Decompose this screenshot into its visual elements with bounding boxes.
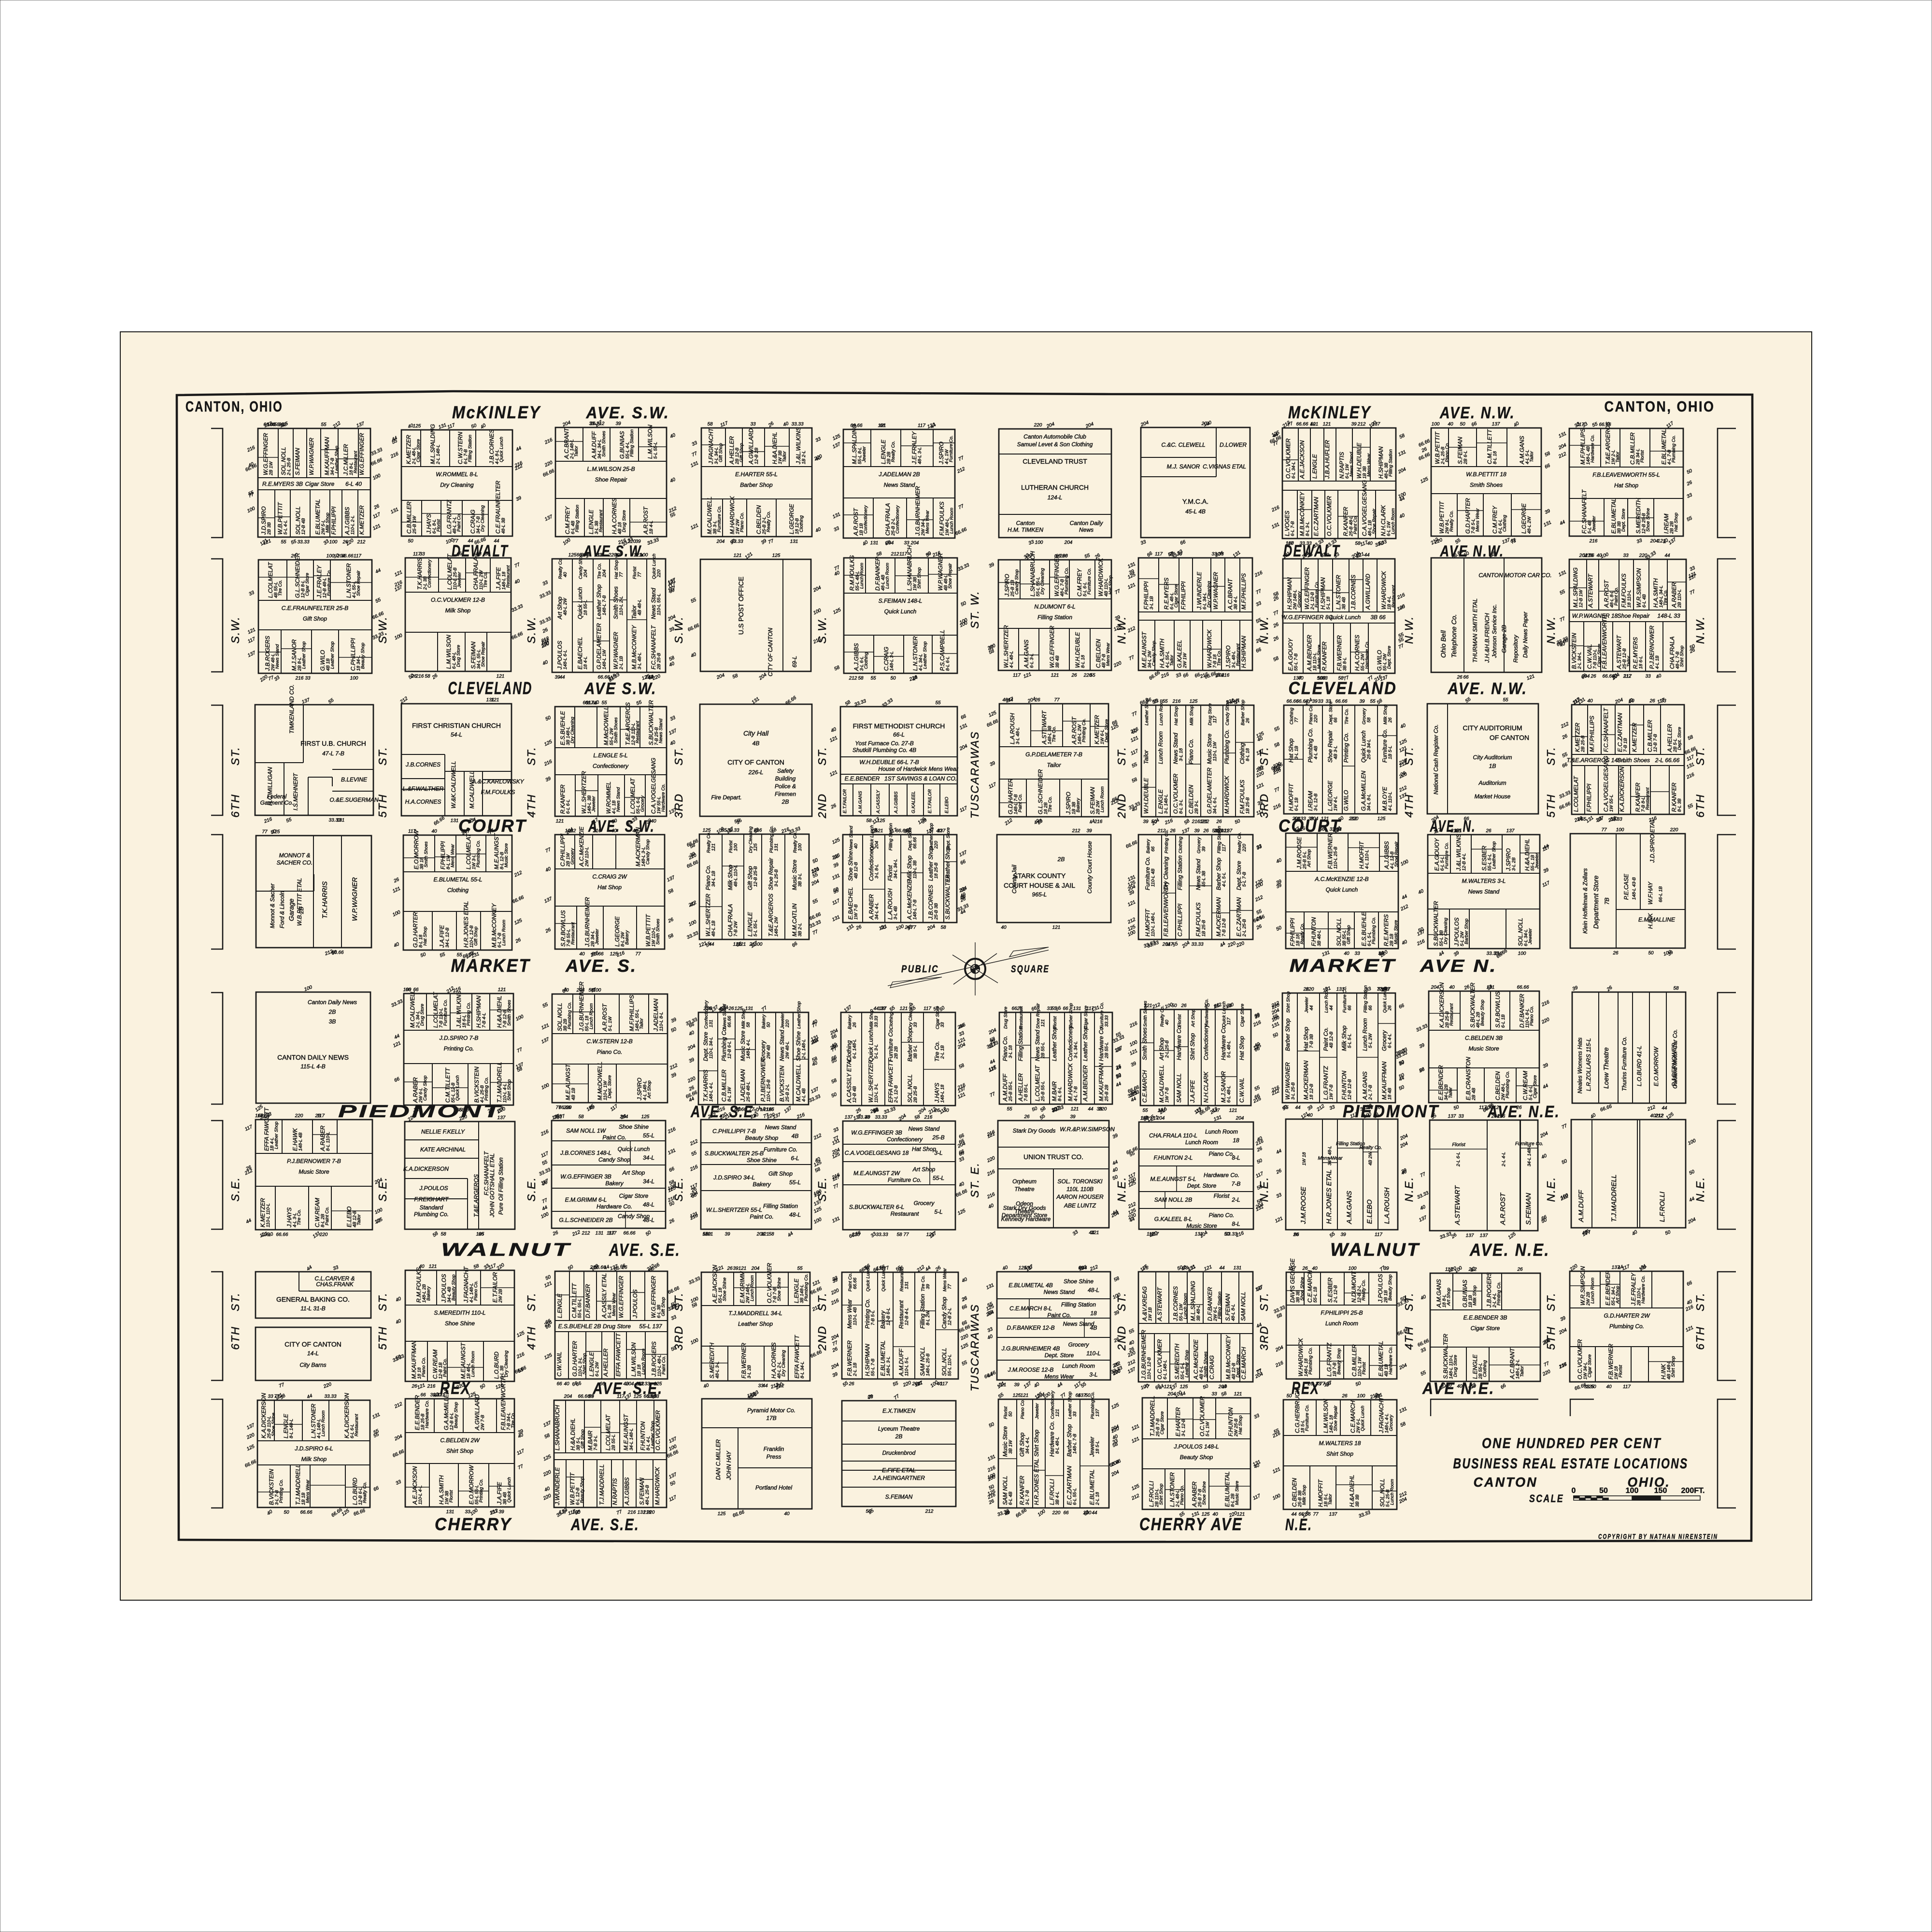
svg-text:100: 100 bbox=[797, 843, 803, 851]
svg-text:JOHN HAY: JOHN HAY bbox=[725, 1450, 732, 1480]
svg-text:Hardware Co.: Hardware Co. bbox=[1641, 1275, 1646, 1304]
svg-text:54-L: 54-L bbox=[451, 731, 462, 738]
svg-text:33.33: 33.33 bbox=[791, 422, 803, 427]
svg-text:117: 117 bbox=[1286, 541, 1293, 546]
svg-text:C.BELDEN: C.BELDEN bbox=[755, 505, 762, 534]
svg-text:A.R.ROST: A.R.ROST bbox=[1603, 580, 1610, 608]
svg-text:L.&F.WALTHER: L.&F.WALTHER bbox=[403, 785, 444, 792]
svg-text:Music Store: Music Store bbox=[1206, 733, 1213, 764]
svg-text:G.KALEEL: G.KALEEL bbox=[1176, 640, 1183, 668]
svg-text:Plumbing Co.: Plumbing Co. bbox=[1307, 728, 1314, 763]
svg-text:C.E.MARCH 8-L: C.E.MARCH 8-L bbox=[1009, 1305, 1052, 1312]
svg-text:L.GEORGE: L.GEORGE bbox=[1327, 780, 1334, 811]
svg-text:121: 121 bbox=[1229, 1108, 1237, 1113]
svg-text:Printing Co.: Printing Co. bbox=[279, 1479, 284, 1503]
svg-text:100: 100 bbox=[1616, 827, 1624, 833]
svg-text:Restaurant: Restaurant bbox=[1391, 585, 1396, 608]
svg-text:1W 55-L: 1W 55-L bbox=[1609, 795, 1614, 812]
svg-text:58: 58 bbox=[425, 674, 430, 679]
svg-text:66.66: 66.66 bbox=[912, 837, 918, 849]
svg-text:110-L 2-L: 110-L 2-L bbox=[619, 596, 624, 615]
svg-text:I.REAM: I.REAM bbox=[1307, 791, 1314, 811]
svg-text:18 4B: 18 4B bbox=[1387, 1088, 1392, 1100]
svg-text:Paint Co.: Paint Co. bbox=[442, 1358, 448, 1377]
svg-text:H.A.CORNES: H.A.CORNES bbox=[611, 498, 618, 534]
svg-text:Hardware Co.: Hardware Co. bbox=[425, 1400, 430, 1428]
svg-text:F.B.LEAVENWORTH 55-L: F.B.LEAVENWORTH 55-L bbox=[1592, 471, 1660, 478]
svg-text:J.M.ROOSE: J.M.ROOSE bbox=[1299, 1186, 1307, 1224]
svg-text:Hat Shop: Hat Shop bbox=[1614, 482, 1638, 489]
svg-text:39: 39 bbox=[1004, 1510, 1010, 1516]
svg-text:55: 55 bbox=[1090, 673, 1095, 678]
svg-text:125: 125 bbox=[735, 1006, 743, 1011]
svg-text:M.E.AUNGST 2W: M.E.AUNGST 2W bbox=[853, 1170, 901, 1177]
svg-text:55: 55 bbox=[601, 700, 607, 706]
svg-text:Federal: Federal bbox=[267, 793, 287, 800]
svg-text:6-L 148-L: 6-L 148-L bbox=[1163, 1360, 1168, 1380]
svg-text:KATE ARCHINAL: KATE ARCHINAL bbox=[420, 1146, 466, 1153]
svg-text:A.M.GANS: A.M.GANS bbox=[1345, 1191, 1353, 1224]
svg-text:Cigar Store: Cigar Store bbox=[1471, 1325, 1500, 1332]
svg-text:L.SHANABRUCH: L.SHANABRUCH bbox=[906, 545, 913, 591]
svg-text:M.HARDWICK: M.HARDWICK bbox=[1223, 775, 1230, 814]
svg-text:C.E.MARCH: C.E.MARCH bbox=[1350, 1400, 1356, 1433]
svg-text:Portland Hotel: Portland Hotel bbox=[755, 1484, 792, 1491]
svg-text:Stark Dry Goods: Stark Dry Goods bbox=[1013, 1127, 1056, 1134]
svg-text:F.HUNTON: F.HUNTON bbox=[1227, 1407, 1234, 1436]
svg-text:125: 125 bbox=[1180, 1384, 1188, 1390]
svg-text:Tailor: Tailor bbox=[1615, 451, 1620, 463]
svg-text:M.M.CATLIN: M.M.CATLIN bbox=[791, 903, 798, 937]
svg-text:W.P.WAGNER: W.P.WAGNER bbox=[1284, 1062, 1291, 1100]
svg-text:25-B 55-L: 25-B 55-L bbox=[1008, 1081, 1013, 1102]
svg-text:66: 66 bbox=[1463, 675, 1469, 680]
svg-text:39: 39 bbox=[581, 553, 586, 558]
svg-text:E.M.GRIMM: E.M.GRIMM bbox=[739, 1271, 746, 1303]
svg-text:5-L 4-L: 5-L 4-L bbox=[283, 520, 288, 535]
svg-text:100: 100 bbox=[329, 540, 338, 545]
svg-text:M.KAUFFMAN: M.KAUFFMAN bbox=[1098, 1063, 1105, 1101]
svg-text:Shoe Shine: Shoe Shine bbox=[445, 1320, 475, 1327]
svg-text:SAM NOLL 1W: SAM NOLL 1W bbox=[566, 1127, 606, 1134]
svg-text:Mens Wear: Mens Wear bbox=[1318, 1156, 1343, 1161]
svg-text:News Stand: News Stand bbox=[765, 1124, 796, 1131]
svg-text:33.33: 33.33 bbox=[1191, 942, 1203, 947]
svg-text:Dept. Store: Dept. Store bbox=[702, 1032, 709, 1061]
svg-text:WALNUT: WALNUT bbox=[1330, 1240, 1420, 1260]
svg-text:M.KAUFFMAN: M.KAUFFMAN bbox=[324, 437, 330, 475]
svg-text:3-L 2B: 3-L 2B bbox=[747, 1365, 752, 1378]
svg-text:Lunch Room: Lunch Room bbox=[859, 563, 865, 589]
svg-text:W.L.SHERTZER: W.L.SHERTZER bbox=[1003, 625, 1009, 668]
svg-text:Barber Shop: Barber Shop bbox=[1284, 1018, 1291, 1051]
svg-text:Monnot & Sacher: Monnot & Sacher bbox=[269, 883, 276, 928]
svg-text:44: 44 bbox=[1291, 1512, 1297, 1517]
svg-text:Leather Shop: Leather Shop bbox=[923, 641, 928, 669]
svg-text:33: 33 bbox=[1182, 1265, 1188, 1271]
svg-text:J.B.A.HUFLER: J.B.A.HUFLER bbox=[1324, 440, 1331, 479]
svg-text:Piano Co.: Piano Co. bbox=[1209, 1151, 1235, 1157]
svg-text:131: 131 bbox=[596, 1231, 604, 1236]
svg-text:131: 131 bbox=[709, 1020, 714, 1027]
svg-text:A.R.ROST: A.R.ROST bbox=[852, 508, 859, 536]
svg-text:Shoe Repair: Shoe Repair bbox=[356, 570, 361, 596]
svg-text:Music Store: Music Store bbox=[739, 1030, 746, 1061]
svg-text:110-L 4B: 110-L 4B bbox=[1151, 868, 1156, 887]
svg-text:M.E.AUNGST: M.E.AUNGST bbox=[1141, 631, 1148, 668]
svg-text:Press: Press bbox=[767, 1453, 781, 1460]
svg-text:148-L 1W: 148-L 1W bbox=[602, 649, 607, 669]
svg-text:Gift Shop: Gift Shop bbox=[303, 615, 327, 622]
svg-text:City Barns: City Barns bbox=[299, 1362, 326, 1368]
svg-text:A.C.McKENZIE 12-B: A.C.McKENZIE 12-B bbox=[1314, 876, 1368, 882]
svg-text:33: 33 bbox=[1325, 699, 1331, 704]
svg-text:H.&A.DIEHL: H.&A.DIEHL bbox=[1524, 838, 1531, 871]
svg-text:26: 26 bbox=[1590, 674, 1596, 679]
svg-text:N.E.: N.E. bbox=[1403, 1177, 1415, 1202]
svg-text:2-L 12-B: 2-L 12-B bbox=[1333, 1285, 1338, 1303]
svg-text:33: 33 bbox=[750, 422, 756, 427]
svg-text:E.BLUMETAL: E.BLUMETAL bbox=[1610, 498, 1617, 534]
svg-text:12-B 4B: 12-B 4B bbox=[852, 1086, 857, 1103]
svg-text:66.66: 66.66 bbox=[623, 1231, 635, 1236]
svg-text:Gift Shop: Gift Shop bbox=[473, 926, 479, 946]
svg-text:4B: 4B bbox=[1090, 1324, 1097, 1331]
svg-text:137: 137 bbox=[1492, 422, 1500, 427]
svg-text:121: 121 bbox=[1200, 819, 1208, 824]
svg-text:Music Store: Music Store bbox=[791, 859, 798, 890]
svg-text:O.C.VOLKMER: O.C.VOLKMER bbox=[1577, 1339, 1583, 1379]
svg-text:Quick Lunch: Quick Lunch bbox=[1360, 1406, 1365, 1431]
svg-text:C.PHILLIPPI: C.PHILLIPPI bbox=[350, 638, 356, 671]
svg-text:77: 77 bbox=[469, 818, 475, 824]
svg-text:4-L 5-L: 4-L 5-L bbox=[1222, 872, 1227, 887]
svg-text:2B: 2B bbox=[781, 798, 789, 805]
svg-text:5-L: 5-L bbox=[934, 1208, 942, 1215]
svg-text:G.P.DELAMETER: G.P.DELAMETER bbox=[1206, 767, 1213, 814]
svg-text:H.A.CORNES: H.A.CORNES bbox=[1354, 635, 1361, 671]
svg-text:40: 40 bbox=[651, 819, 656, 824]
svg-text:48-L 25-B: 48-L 25-B bbox=[645, 1485, 650, 1505]
svg-text:148-L 2W: 148-L 2W bbox=[774, 916, 779, 937]
svg-text:121: 121 bbox=[1454, 828, 1462, 834]
svg-text:S.MEREDITH 110-L: S.MEREDITH 110-L bbox=[434, 1309, 485, 1316]
svg-text:Telephone Co.: Telephone Co. bbox=[1450, 614, 1458, 658]
svg-text:A.STEWART: A.STEWART bbox=[1156, 1287, 1163, 1321]
svg-text:55: 55 bbox=[1051, 1006, 1057, 1011]
svg-text:131: 131 bbox=[638, 1510, 646, 1515]
svg-text:S.BUCKWALTER 6-L: S.BUCKWALTER 6-L bbox=[849, 1204, 904, 1210]
svg-text:6-L 34-L: 6-L 34-L bbox=[1291, 462, 1296, 479]
svg-text:C.VIGNAS ETAL: C.VIGNAS ETAL bbox=[1203, 463, 1246, 470]
svg-text:AVE. S.E.: AVE. S.E. bbox=[609, 1240, 681, 1260]
svg-text:Lunch Room: Lunch Room bbox=[750, 1275, 755, 1301]
svg-text:26: 26 bbox=[621, 1265, 627, 1270]
svg-text:2W 7-B: 2W 7-B bbox=[480, 1415, 485, 1431]
svg-text:National Cash Register Co.: National Cash Register Co. bbox=[1433, 724, 1439, 795]
svg-text:77: 77 bbox=[1313, 1512, 1319, 1517]
svg-text:50: 50 bbox=[408, 539, 413, 544]
svg-text:39: 39 bbox=[724, 1232, 730, 1237]
svg-text:C.M.TILLETT: C.M.TILLETT bbox=[571, 1282, 578, 1318]
svg-text:AVE. N.W.: AVE. N.W. bbox=[1439, 404, 1515, 422]
svg-text:N.W.: N.W. bbox=[1403, 616, 1415, 644]
svg-text:A.RABER: A.RABER bbox=[412, 1077, 419, 1103]
svg-text:26: 26 bbox=[1071, 673, 1077, 678]
svg-text:S.FEIMAN 148-L: S.FEIMAN 148-L bbox=[879, 597, 923, 604]
svg-text:T.&E.ARGEROS: T.&E.ARGEROS bbox=[625, 702, 631, 745]
svg-text:J.B.CORNES: J.B.CORNES bbox=[488, 429, 495, 465]
svg-text:2B 25-B: 2B 25-B bbox=[1580, 735, 1586, 753]
svg-text:ST.: ST. bbox=[229, 746, 241, 766]
svg-text:Hat Shop: Hat Shop bbox=[423, 926, 428, 946]
svg-text:Leather Shop: Leather Shop bbox=[944, 846, 951, 881]
svg-text:5-L 55-L: 5-L 55-L bbox=[753, 920, 758, 937]
svg-text:Clothing: Clothing bbox=[864, 652, 869, 669]
svg-text:204: 204 bbox=[564, 1394, 572, 1399]
svg-text:117: 117 bbox=[1212, 715, 1218, 723]
svg-text:2B 3B: 2B 3B bbox=[267, 522, 272, 535]
svg-text:Daily News Paper: Daily News Paper bbox=[1522, 611, 1529, 658]
svg-text:R.E.MYERS: R.E.MYERS bbox=[1163, 578, 1170, 610]
svg-text:44: 44 bbox=[1088, 1107, 1094, 1112]
svg-text:L.ENGLE: L.ENGLE bbox=[556, 1293, 563, 1318]
svg-text:216: 216 bbox=[1172, 699, 1181, 704]
svg-text:Dry Cleaning: Dry Cleaning bbox=[570, 716, 575, 743]
svg-text:Ford & Lincoln: Ford & Lincoln bbox=[279, 891, 285, 928]
svg-text:58: 58 bbox=[459, 1108, 465, 1113]
svg-text:CANTON MOTOR CAR CO.: CANTON MOTOR CAR CO. bbox=[1478, 572, 1552, 579]
svg-text:E.LEBO: E.LEBO bbox=[346, 1207, 353, 1227]
svg-text:3RD: 3RD bbox=[1258, 1325, 1270, 1350]
svg-text:C.PHILLIPPI: C.PHILLIPPI bbox=[1177, 903, 1183, 937]
svg-text:M.CALDWELL: M.CALDWELL bbox=[795, 1064, 802, 1102]
svg-text:CHERRY: CHERRY bbox=[435, 1514, 512, 1534]
svg-text:A.C.BRANT: A.C.BRANT bbox=[1227, 578, 1234, 610]
svg-text:Tailor: Tailor bbox=[1529, 451, 1534, 462]
svg-text:6-L 2W: 6-L 2W bbox=[595, 1362, 600, 1377]
svg-text:C.M.TILLETT: C.M.TILLETT bbox=[444, 1067, 451, 1103]
svg-text:J.SPIRO: J.SPIRO bbox=[1505, 848, 1512, 871]
svg-text:18: 18 bbox=[1233, 1137, 1239, 1144]
svg-text:Lunch Room: Lunch Room bbox=[1391, 508, 1396, 534]
svg-text:39: 39 bbox=[733, 1266, 739, 1271]
svg-text:5-L 55-L: 5-L 55-L bbox=[653, 442, 658, 459]
svg-text:148-L 25-B: 148-L 25-B bbox=[925, 1353, 931, 1376]
svg-text:Johnson Service Inc.: Johnson Service Inc. bbox=[1491, 604, 1498, 658]
svg-text:J.&L.WILKINS: J.&L.WILKINS bbox=[455, 991, 462, 1028]
svg-text:Gift Shop: Gift Shop bbox=[718, 443, 724, 462]
svg-text:26: 26 bbox=[904, 925, 910, 930]
svg-text:O.C.VOLKMER 12-B: O.C.VOLKMER 12-B bbox=[431, 597, 485, 603]
svg-text:H.R.JONES ETAL: H.R.JONES ETAL bbox=[1325, 1169, 1333, 1224]
svg-text:Beauty Shop: Beauty Shop bbox=[1480, 1000, 1485, 1026]
svg-text:C.BELDEN: C.BELDEN bbox=[1188, 785, 1194, 814]
svg-text:Gift Shop: Gift Shop bbox=[580, 1429, 585, 1449]
svg-text:48-L 3B: 48-L 3B bbox=[501, 517, 506, 534]
svg-text:E.BLUMETAL 4B: E.BLUMETAL 4B bbox=[1009, 1282, 1053, 1289]
svg-text:M.L.SPALDING: M.L.SPALDING bbox=[429, 424, 436, 464]
svg-text:Quick Lunch: Quick Lunch bbox=[1329, 614, 1361, 621]
svg-text:M.WALTERS 18: M.WALTERS 18 bbox=[1319, 1440, 1361, 1447]
svg-text:Gift Shop: Gift Shop bbox=[1019, 1433, 1025, 1457]
svg-text:A.E.JACKSON: A.E.JACKSON bbox=[1299, 440, 1306, 479]
svg-text:A.J.GIBBS: A.J.GIBBS bbox=[853, 643, 860, 671]
svg-text:M.E.AUNGST 5-L: M.E.AUNGST 5-L bbox=[1150, 1176, 1196, 1182]
svg-text:H.M. TIMKEN: H.M. TIMKEN bbox=[1008, 526, 1043, 533]
svg-text:Mens Wear: Mens Wear bbox=[846, 1299, 853, 1329]
svg-text:L.F.ROLLI: L.F.ROLLI bbox=[1658, 1192, 1666, 1222]
svg-text:220: 220 bbox=[934, 840, 939, 849]
svg-text:Samuel Levet & Son Clothing: Samuel Levet & Son Clothing bbox=[1017, 441, 1093, 448]
svg-text:CHA.FRALA: CHA.FRALA bbox=[472, 557, 479, 590]
svg-text:H.SHIPMAN: H.SHIPMAN bbox=[1378, 446, 1384, 479]
svg-text:58: 58 bbox=[440, 1232, 446, 1237]
svg-text:J.POULOS: J.POULOS bbox=[1377, 1274, 1384, 1303]
svg-text:Piano Co.: Piano Co. bbox=[1209, 1212, 1235, 1219]
svg-text:S.E.: S.E. bbox=[525, 1177, 538, 1201]
svg-text:H.MOFFIT: H.MOFFIT bbox=[1317, 1479, 1324, 1507]
svg-text:S.FEIMAN: S.FEIMAN bbox=[1457, 437, 1463, 464]
svg-text:117: 117 bbox=[1226, 1017, 1232, 1025]
svg-text:SOL.NOLL: SOL.NOLL bbox=[556, 1003, 563, 1031]
svg-text:Printing Co.: Printing Co. bbox=[1343, 732, 1350, 763]
svg-text:2B 25-B: 2B 25-B bbox=[656, 653, 662, 670]
svg-text:N.E.: N.E. bbox=[1545, 1177, 1557, 1202]
svg-text:8-L 6-L: 8-L 6-L bbox=[945, 656, 951, 671]
svg-text:Shirt Shop: Shirt Shop bbox=[1189, 1033, 1196, 1060]
svg-text:125: 125 bbox=[413, 424, 421, 429]
svg-text:Furniture Co.: Furniture Co. bbox=[887, 1028, 894, 1062]
svg-text:W.G.EFFINGER: W.G.EFFINGER bbox=[618, 1276, 625, 1318]
svg-text:3B 48-L: 3B 48-L bbox=[1196, 1305, 1201, 1321]
svg-text:L.O.BURD: L.O.BURD bbox=[352, 1477, 358, 1505]
svg-text:131: 131 bbox=[446, 1509, 455, 1515]
svg-text:110-L 8-L: 110-L 8-L bbox=[659, 1012, 664, 1031]
svg-text:Shoe Shine: Shoe Shine bbox=[1300, 1277, 1305, 1301]
svg-text:Hat Shop: Hat Shop bbox=[1108, 575, 1113, 595]
svg-text:121: 121 bbox=[734, 553, 742, 558]
svg-text:39: 39 bbox=[1086, 828, 1092, 834]
svg-text:L.G.FRANTZ: L.G.FRANTZ bbox=[446, 499, 453, 534]
svg-text:E.M.MALLINE: E.M.MALLINE bbox=[1638, 916, 1676, 923]
svg-text:Florist: Florist bbox=[1214, 1193, 1230, 1199]
svg-text:W.L.SHERTZER: W.L.SHERTZER bbox=[581, 771, 587, 814]
svg-text:6TH: 6TH bbox=[229, 1326, 241, 1350]
svg-text:216: 216 bbox=[627, 1510, 636, 1515]
svg-text:W.P.WAGNER 18: W.P.WAGNER 18 bbox=[1572, 612, 1618, 619]
svg-text:Shirt Shop: Shirt Shop bbox=[507, 1080, 512, 1101]
svg-text:33.33: 33.33 bbox=[876, 1232, 888, 1237]
svg-text:66: 66 bbox=[1463, 816, 1469, 822]
svg-text:Jeweler: Jeweler bbox=[862, 446, 867, 463]
svg-text:77: 77 bbox=[1294, 717, 1299, 723]
svg-text:Milk Shop: Milk Shop bbox=[1302, 1485, 1307, 1505]
svg-text:A.R.ROST: A.R.ROST bbox=[1071, 716, 1078, 745]
svg-text:121: 121 bbox=[900, 1006, 908, 1011]
svg-text:Realty Co.: Realty Co. bbox=[891, 441, 896, 462]
svg-text:66: 66 bbox=[484, 552, 490, 557]
svg-text:R.E.MYERS: R.E.MYERS bbox=[1383, 914, 1390, 946]
svg-text:2-L 6-L: 2-L 6-L bbox=[1456, 1152, 1461, 1167]
svg-text:ST. W.: ST. W. bbox=[968, 590, 981, 628]
svg-text:T.J.MADDRELL: T.J.MADDRELL bbox=[598, 1464, 605, 1505]
svg-text:137: 137 bbox=[1480, 1233, 1488, 1238]
svg-text:Cigar Store: Cigar Store bbox=[1174, 584, 1179, 608]
svg-text:8-L 18: 8-L 18 bbox=[1080, 655, 1086, 668]
svg-text:Florist: Florist bbox=[1452, 1142, 1465, 1148]
svg-text:131: 131 bbox=[1336, 987, 1345, 992]
svg-text:Pyramid Motor Co.: Pyramid Motor Co. bbox=[747, 1407, 796, 1414]
svg-text:1B 25-B: 1B 25-B bbox=[1245, 797, 1250, 814]
svg-text:Quick Lunch: Quick Lunch bbox=[1360, 730, 1367, 763]
svg-text:Shoe Repair: Shoe Repair bbox=[1333, 1405, 1338, 1431]
svg-text:L.A.ROUSH: L.A.ROUSH bbox=[1383, 1187, 1391, 1224]
svg-text:W.P.WAGNER: W.P.WAGNER bbox=[351, 877, 358, 921]
svg-text:Lunch Room: Lunch Room bbox=[1362, 1018, 1368, 1051]
svg-text:66.66: 66.66 bbox=[1335, 699, 1347, 704]
svg-text:K.A.DICKERSON: K.A.DICKERSON bbox=[403, 1165, 449, 1172]
svg-text:Building: Building bbox=[775, 775, 796, 782]
svg-text:Shirt Shop: Shirt Shop bbox=[1671, 1356, 1676, 1378]
svg-text:26: 26 bbox=[728, 1006, 734, 1011]
svg-text:W.H.DEUBLE 66-L 7-B: W.H.DEUBLE 66-L 7-B bbox=[859, 759, 919, 766]
svg-text:L.ENGLE: L.ENGLE bbox=[747, 911, 753, 937]
svg-text:58: 58 bbox=[707, 422, 713, 427]
svg-text:110L 110B: 110L 110B bbox=[1066, 1186, 1094, 1193]
svg-text:B.LEVINE: B.LEVINE bbox=[341, 776, 368, 783]
svg-text:E.C.ZARTMAN: E.C.ZARTMAN bbox=[1313, 497, 1320, 536]
svg-text:4-L 4B: 4-L 4B bbox=[801, 1088, 807, 1102]
svg-text:40: 40 bbox=[936, 828, 942, 834]
svg-text:3-L: 3-L bbox=[1089, 1371, 1097, 1378]
svg-text:Piano Co.: Piano Co. bbox=[597, 1049, 623, 1055]
svg-text:220: 220 bbox=[295, 1113, 303, 1119]
svg-text:Paint Co.: Paint Co. bbox=[1322, 1027, 1329, 1051]
svg-text:S.R.BOWLUS: S.R.BOWLUS bbox=[560, 910, 567, 947]
svg-text:55: 55 bbox=[797, 1266, 803, 1271]
svg-text:A.M.GANS: A.M.GANS bbox=[1519, 436, 1525, 465]
svg-text:Fire Depart.: Fire Depart. bbox=[711, 794, 741, 801]
svg-text:M.McDOWELL: M.McDOWELL bbox=[603, 707, 610, 745]
svg-text:Canton Automobile Club: Canton Automobile Club bbox=[1023, 433, 1086, 440]
svg-text:G.D.HARTER 2W: G.D.HARTER 2W bbox=[1604, 1312, 1650, 1319]
svg-text:A.E.JACKSON: A.E.JACKSON bbox=[412, 1466, 418, 1505]
svg-text:12-B 4B: 12-B 4B bbox=[301, 518, 306, 535]
svg-text:Hardware Co.: Hardware Co. bbox=[1590, 434, 1595, 463]
svg-text:6-L 7-B: 6-L 7-B bbox=[1290, 521, 1295, 536]
svg-text:ST.: ST. bbox=[816, 746, 828, 766]
svg-text:8-L 3-L: 8-L 3-L bbox=[1305, 522, 1310, 536]
svg-text:Filling Station: Filling Station bbox=[1017, 1026, 1024, 1061]
svg-text:Lunch Room: Lunch Room bbox=[501, 920, 507, 946]
svg-text:Tailor: Tailor bbox=[1520, 1365, 1525, 1377]
svg-text:77: 77 bbox=[635, 952, 641, 957]
svg-text:O.C.VOLKMER: O.C.VOLKMER bbox=[1156, 1339, 1163, 1379]
svg-text:F.HUNTON 2-L: F.HUNTON 2-L bbox=[1154, 1154, 1193, 1161]
svg-text:W.B.PETTIT: W.B.PETTIT bbox=[277, 501, 284, 535]
svg-text:1B 2-L: 1B 2-L bbox=[801, 451, 807, 464]
svg-text:DAN C.MILLER: DAN C.MILLER bbox=[715, 1439, 722, 1480]
svg-text:Jeweler: Jeweler bbox=[457, 571, 462, 588]
svg-text:Hardware Co.: Hardware Co. bbox=[1176, 1024, 1182, 1060]
svg-text:A.M.DUFF: A.M.DUFF bbox=[1577, 1189, 1585, 1222]
svg-text:34-L: 34-L bbox=[643, 1154, 654, 1161]
svg-text:Dry Cleaning: Dry Cleaning bbox=[440, 482, 474, 488]
svg-text:E.C.ZARTMAN: E.C.ZARTMAN bbox=[1066, 1466, 1073, 1505]
svg-text:Drug Store: Drug Store bbox=[1453, 1355, 1458, 1377]
svg-text:Hardware Co.: Hardware Co. bbox=[1364, 640, 1370, 669]
